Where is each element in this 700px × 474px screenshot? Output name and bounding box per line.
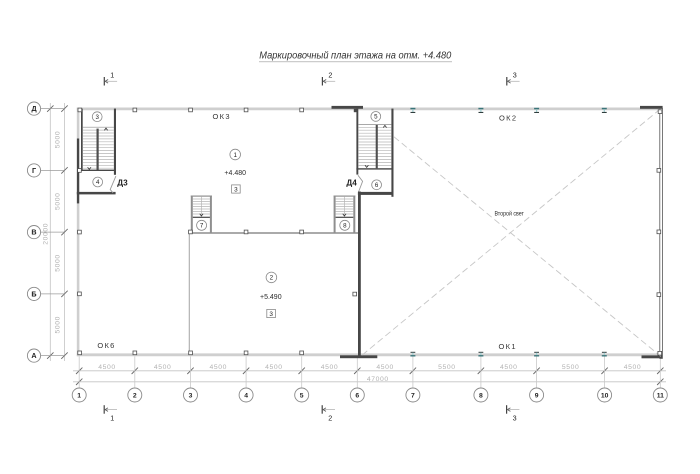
- svg-text:3: 3: [234, 186, 238, 193]
- svg-text:Г: Г: [32, 166, 36, 175]
- svg-text:4500: 4500: [98, 364, 116, 371]
- svg-text:4: 4: [96, 179, 100, 186]
- svg-text:Второй свет: Второй свет: [494, 210, 524, 217]
- svg-text:4500: 4500: [154, 364, 172, 371]
- svg-text:4500: 4500: [265, 364, 283, 371]
- svg-text:ОК1: ОК1: [499, 342, 517, 351]
- svg-text:2: 2: [133, 392, 137, 399]
- svg-text:2: 2: [328, 71, 332, 80]
- svg-text:5500: 5500: [438, 364, 456, 371]
- svg-text:5000: 5000: [55, 131, 62, 149]
- svg-text:ОК3: ОК3: [213, 112, 231, 121]
- svg-text:+4.480: +4.480: [224, 170, 246, 177]
- svg-text:8: 8: [343, 223, 347, 230]
- svg-text:4500: 4500: [321, 364, 339, 371]
- svg-text:3: 3: [95, 114, 99, 121]
- svg-text:2: 2: [270, 275, 274, 282]
- svg-text:Д4: Д4: [346, 179, 357, 188]
- svg-text:6: 6: [355, 392, 359, 399]
- svg-text:4500: 4500: [500, 364, 518, 371]
- svg-text:ОК2: ОК2: [499, 113, 517, 122]
- svg-text:20000: 20000: [43, 223, 50, 245]
- svg-text:8: 8: [479, 392, 483, 399]
- svg-text:3: 3: [513, 71, 517, 80]
- svg-text:1: 1: [110, 414, 114, 423]
- svg-text:10: 10: [601, 392, 609, 399]
- svg-text:47000: 47000: [367, 376, 389, 383]
- svg-text:3: 3: [189, 392, 193, 399]
- svg-text:ОК6: ОК6: [97, 341, 115, 350]
- svg-text:Б: Б: [31, 289, 36, 298]
- svg-text:5000: 5000: [55, 192, 62, 210]
- svg-text:Д3: Д3: [117, 179, 128, 188]
- svg-text:4500: 4500: [376, 364, 394, 371]
- svg-text:В: В: [31, 228, 36, 237]
- svg-text:5: 5: [374, 114, 378, 121]
- svg-text:5: 5: [300, 392, 304, 399]
- svg-text:11: 11: [657, 392, 664, 399]
- svg-text:Маркировочный план этажа на от: Маркировочный план этажа на отм. +4.480: [259, 51, 451, 62]
- svg-text:4: 4: [244, 392, 248, 399]
- svg-text:3: 3: [269, 311, 273, 318]
- svg-text:4500: 4500: [210, 364, 228, 371]
- svg-text:Д: Д: [31, 104, 36, 113]
- svg-text:7: 7: [411, 392, 415, 399]
- svg-text:3: 3: [513, 414, 517, 423]
- svg-text:6: 6: [375, 182, 379, 189]
- svg-text:9: 9: [535, 392, 539, 399]
- svg-text:4500: 4500: [624, 364, 642, 371]
- svg-text:7: 7: [200, 223, 204, 230]
- svg-text:5000: 5000: [55, 316, 62, 334]
- svg-text:+5.490: +5.490: [260, 294, 282, 301]
- svg-text:1: 1: [110, 71, 114, 80]
- svg-text:5000: 5000: [55, 254, 62, 272]
- svg-text:1: 1: [77, 392, 81, 399]
- svg-text:2: 2: [328, 414, 332, 423]
- svg-text:5500: 5500: [562, 364, 580, 371]
- svg-text:А: А: [31, 351, 36, 360]
- svg-text:1: 1: [233, 152, 237, 159]
